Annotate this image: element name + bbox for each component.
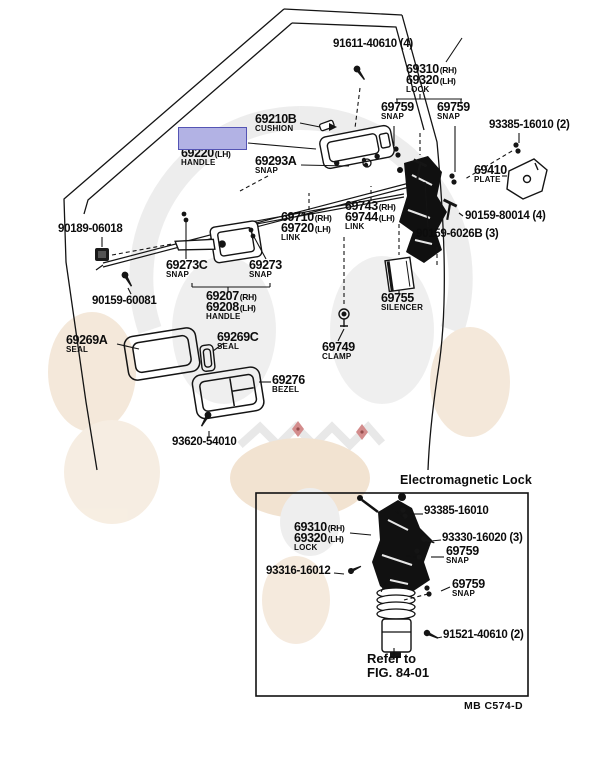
label-69310-69320-lock: 69310(RH) 69320(LH) LOCK	[406, 63, 457, 94]
refer-to-fig-note: Refer to FIG. 84-01	[367, 652, 429, 680]
inset-label-69759-snap-lower: 69759 SNAP	[452, 578, 485, 598]
label-69269a-seal: 69269A SEAL	[66, 334, 107, 354]
label-69410-plate: 69410 PLATE	[474, 164, 507, 184]
screw-icon-40610	[423, 629, 439, 641]
label-91611-40610: 91611-40610 (4)	[333, 38, 413, 50]
label-69743-69744-link: 69743(RH) 69744(LH) LINK	[345, 200, 396, 231]
label-69210b-cushion: 69210B CUSHION	[255, 113, 296, 133]
inset-label-93330-16020: 93330-16020 (3)	[442, 532, 523, 544]
label-69755-silencer: 69755 SILENCER	[381, 292, 423, 312]
inset-label-69759-snap-upper: 69759 SNAP	[446, 545, 479, 565]
grommet-icon	[95, 248, 109, 261]
inset-label-93316-16012: 93316-16012	[266, 565, 331, 577]
inset-title: Electromagnetic Lock	[400, 473, 532, 487]
label-69273-snap: 69273 SNAP	[249, 259, 282, 279]
label-69710-69720-link: 69710(RH) 69720(LH) LINK	[281, 211, 332, 242]
screw-icon-93620	[199, 410, 213, 428]
label-69276-bezel: 69276 BEZEL	[272, 374, 305, 394]
part-highlight-overlay	[178, 127, 247, 150]
plate-drawing	[507, 159, 547, 199]
figure-code: MB C574-D	[464, 700, 523, 712]
inset-label-69310-69320-lock: 69310(RH) 69320(LH) LOCK	[294, 521, 345, 552]
inset-lock-drawing	[357, 493, 432, 598]
label-90159-80014: 90159-80014 (4)	[465, 210, 546, 222]
screw-icon-91611	[352, 64, 367, 81]
inset-label-91521-40610: 91521-40610 (2)	[443, 629, 524, 641]
label-69749-clamp: 69749 CLAMP	[322, 341, 355, 361]
label-90159-60081: 90159-60081	[92, 295, 157, 307]
label-69293a-snap: 69293A SNAP	[255, 155, 296, 175]
actuator-drawing	[377, 588, 415, 658]
parts-diagram-page: 91611-40610 (4) 69310(RH) 69320(LH) LOCK…	[0, 0, 606, 768]
label-69759-snap-left: 69759 SNAP	[381, 101, 414, 121]
label-69273c-snap: 69273C SNAP	[166, 259, 207, 279]
label-90189-06018: 90189-06018	[58, 223, 123, 235]
label-93620-54010: 93620-54010	[172, 436, 237, 448]
label-90159-6026b: 90159-6026B (3)	[416, 228, 498, 240]
label-69207-69208-handle: 69207(RH) 69208(LH) HANDLE	[206, 290, 257, 321]
screw-icon-16012	[347, 564, 362, 575]
label-69269c-seal: 69269C SEAL	[217, 331, 258, 351]
silencer-drawing	[385, 257, 414, 291]
label-93385-16010-main: 93385-16010 (2)	[489, 119, 570, 131]
label-69759-snap-right: 69759 SNAP	[437, 101, 470, 121]
inset-label-93385-16010: 93385-16010	[424, 505, 489, 517]
